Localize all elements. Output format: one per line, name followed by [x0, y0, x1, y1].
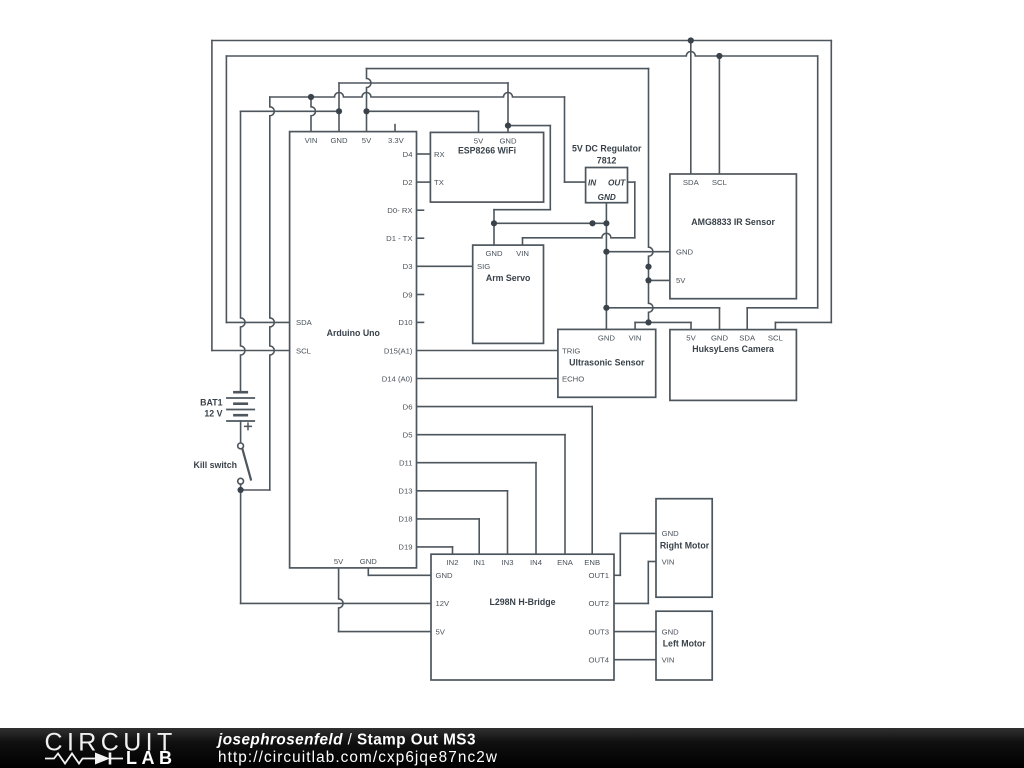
svg-text:VIN: VIN: [662, 656, 675, 665]
svg-text:GND: GND: [436, 571, 454, 580]
svg-text:SDA: SDA: [296, 318, 313, 327]
svg-text:5V: 5V: [474, 136, 484, 145]
svg-text:D10: D10: [398, 318, 412, 327]
svg-text:Arm Servo: Arm Servo: [486, 273, 531, 283]
svg-text:GND: GND: [330, 136, 348, 145]
svg-text:VIN: VIN: [516, 249, 529, 258]
svg-text:OUT3: OUT3: [588, 627, 609, 636]
svg-text:LAB: LAB: [126, 748, 177, 768]
svg-text:IN2: IN2: [447, 558, 459, 567]
svg-text:http://circuitlab.com/cxp6jqe8: http://circuitlab.com/cxp6jqe87nc2w: [218, 749, 498, 766]
svg-text:Arduino Uno: Arduino Uno: [327, 328, 381, 338]
svg-text:Ultrasonic Sensor: Ultrasonic Sensor: [569, 358, 645, 368]
svg-text:BAT1: BAT1: [200, 397, 222, 407]
svg-text:SCL: SCL: [712, 178, 728, 187]
svg-text:GND: GND: [598, 333, 616, 342]
svg-text:HuksyLens Camera: HuksyLens Camera: [692, 344, 774, 354]
svg-text:GND: GND: [499, 136, 517, 145]
svg-text:OUT2: OUT2: [588, 599, 609, 608]
svg-text:SDA: SDA: [683, 178, 700, 187]
svg-text:Right Motor: Right Motor: [660, 540, 710, 550]
svg-text:RX: RX: [434, 150, 445, 159]
svg-text:GND: GND: [662, 627, 680, 636]
svg-text:GND: GND: [360, 557, 378, 566]
svg-text:TX: TX: [434, 178, 444, 187]
svg-text:12 V: 12 V: [204, 408, 222, 418]
svg-text:VIN: VIN: [629, 333, 642, 342]
svg-text:D6: D6: [403, 402, 413, 411]
svg-text:OUT: OUT: [608, 178, 626, 187]
svg-text:ENA: ENA: [557, 558, 574, 567]
svg-text:5V DC Regulator: 5V DC Regulator: [572, 143, 642, 153]
svg-text:D4: D4: [403, 150, 414, 159]
svg-text:3.3V: 3.3V: [388, 136, 405, 145]
svg-text:D11: D11: [399, 459, 413, 468]
svg-text:josephrosenfeld / Stamp Out MS: josephrosenfeld / Stamp Out MS3: [216, 732, 476, 749]
svg-text:OUT1: OUT1: [588, 571, 609, 580]
svg-text:VIN: VIN: [305, 136, 318, 145]
svg-text:GND: GND: [711, 334, 729, 343]
svg-text:ECHO: ECHO: [562, 374, 584, 383]
svg-text:D13: D13: [398, 487, 412, 496]
svg-text:D0- RX: D0- RX: [387, 206, 412, 215]
svg-text:GND: GND: [485, 249, 503, 258]
svg-text:VIN: VIN: [662, 557, 675, 566]
svg-text:IN1: IN1: [473, 558, 485, 567]
svg-text:SDA: SDA: [739, 334, 756, 343]
svg-text:ENB: ENB: [584, 558, 600, 567]
svg-text:GND: GND: [598, 193, 616, 202]
svg-text:5V: 5V: [676, 276, 686, 285]
svg-text:GND: GND: [676, 248, 694, 257]
svg-text:IN: IN: [588, 178, 597, 187]
svg-text:7812: 7812: [597, 155, 617, 165]
svg-text:GND: GND: [662, 529, 680, 538]
svg-text:5V: 5V: [362, 136, 372, 145]
svg-text:D2: D2: [403, 178, 413, 187]
svg-text:SCL: SCL: [296, 346, 312, 355]
svg-text:D5: D5: [403, 431, 413, 440]
svg-text:L298N H-Bridge: L298N H-Bridge: [490, 597, 556, 607]
svg-text:D9: D9: [403, 290, 413, 299]
svg-text:IN3: IN3: [502, 558, 514, 567]
svg-text:12V: 12V: [436, 599, 451, 608]
svg-text:D1 - TX: D1 - TX: [386, 234, 412, 243]
svg-text:Left Motor: Left Motor: [663, 638, 707, 648]
svg-text:D19: D19: [398, 543, 412, 552]
svg-text:D14 (A0): D14 (A0): [382, 374, 413, 383]
svg-text:5V: 5V: [436, 627, 446, 636]
svg-text:5V: 5V: [334, 557, 344, 566]
svg-text:AMG8833 IR Sensor: AMG8833 IR Sensor: [691, 217, 775, 227]
svg-text:SCL: SCL: [768, 334, 784, 343]
svg-text:TRIG: TRIG: [562, 346, 580, 355]
svg-text:Kill switch: Kill switch: [193, 460, 237, 470]
svg-text:OUT4: OUT4: [588, 656, 609, 665]
svg-text:SIG: SIG: [477, 262, 490, 271]
svg-text:D3: D3: [403, 262, 413, 271]
svg-text:5V: 5V: [686, 334, 696, 343]
svg-text:ESP8266 WiFi: ESP8266 WiFi: [458, 146, 516, 156]
svg-text:D18: D18: [398, 515, 412, 524]
svg-text:IN4: IN4: [530, 558, 543, 567]
svg-text:D15(A1): D15(A1): [384, 346, 413, 355]
